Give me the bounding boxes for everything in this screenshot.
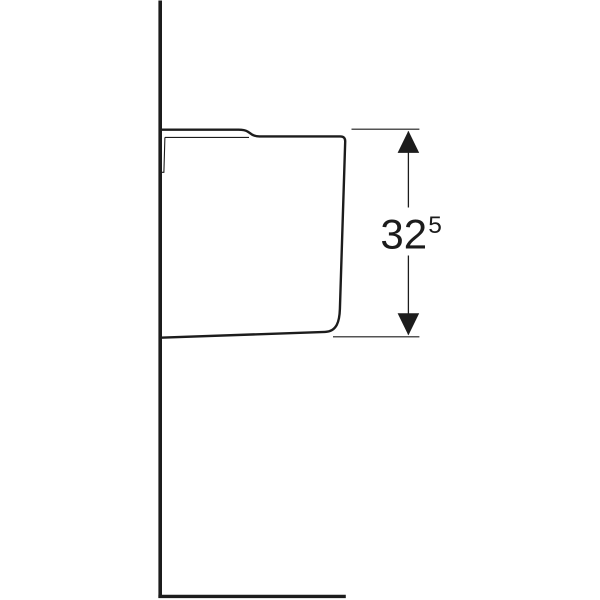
svg-text:5: 5 — [428, 212, 442, 239]
svg-text:32: 32 — [380, 211, 427, 258]
